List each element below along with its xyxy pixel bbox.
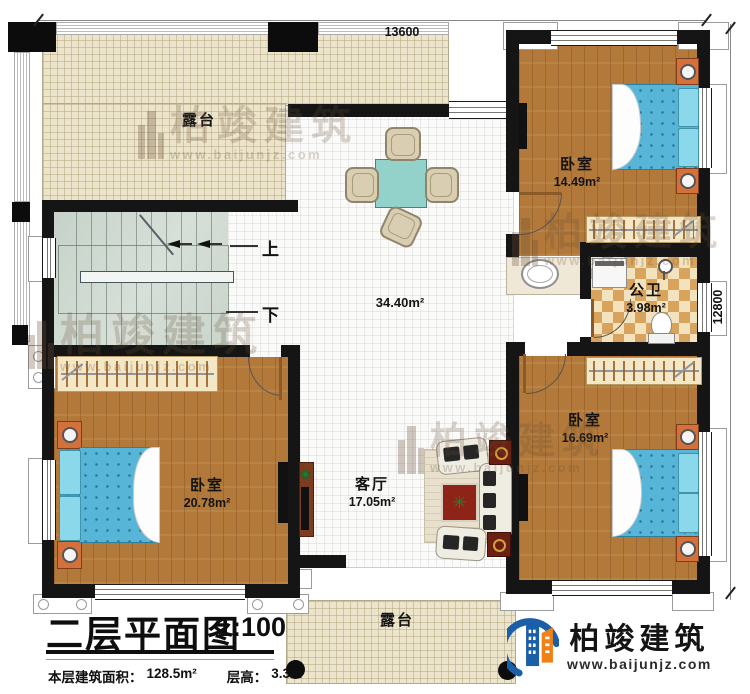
bathroom-label: 公卫 3.98m² [606, 282, 686, 316]
floor-area-value: 128.5m² [147, 666, 197, 686]
wardrobe [586, 357, 702, 385]
column [8, 22, 56, 52]
tv [519, 103, 527, 149]
arrow-tail [210, 243, 222, 245]
nightstand [676, 168, 699, 194]
window [42, 460, 56, 540]
title-underline-thin [46, 659, 274, 660]
living-room-label: 客厅 17.05m² [322, 476, 422, 510]
window-sill [672, 592, 714, 611]
wall [42, 212, 54, 238]
bedroom-bottom-left-label: 卧室 20.78m² [157, 477, 257, 511]
terrace-bottom-label: 露台 [357, 612, 437, 631]
bedroom-top-right-label: 卧室 14.49m² [527, 156, 627, 190]
door-leaf [519, 192, 561, 195]
window [449, 101, 506, 119]
tv [278, 462, 288, 523]
wall [293, 555, 346, 568]
floor-height-value: 3.3m [271, 666, 302, 686]
door-leaf [591, 299, 594, 337]
terrace-railing-left [14, 52, 30, 202]
pillow [678, 453, 699, 493]
stair-direction-arrow [197, 240, 210, 248]
wall [672, 580, 710, 594]
company-website: www.baijunjz.com [567, 656, 712, 672]
company-logo: 柏竣建筑 www.baijunjz.com [507, 610, 727, 684]
stairs-down-label: 下 [262, 301, 279, 326]
floor-plan-canvas: 上 下 ✳ [0, 0, 750, 694]
dimension-line-right [730, 24, 731, 600]
stair-handrail [80, 271, 234, 283]
pillow [678, 88, 699, 127]
column [268, 22, 318, 52]
company-name: 柏竣建筑 [569, 623, 709, 656]
pier [12, 202, 30, 222]
pillow [59, 450, 81, 495]
nightstand [57, 421, 82, 449]
title-info-line: 本层建筑面积： 128.5m² 层高： 3.3m [48, 666, 302, 686]
drawing-scale: 1:100 [217, 612, 286, 643]
stair-direction-arrow [167, 240, 180, 248]
dining-chair [385, 127, 421, 161]
nightstand [57, 541, 82, 569]
wall [506, 36, 519, 192]
sink [521, 259, 559, 289]
toilet-tank [648, 333, 675, 344]
dining-chair [425, 167, 459, 203]
armchair [435, 525, 487, 561]
wall [245, 584, 300, 598]
side-table [489, 440, 512, 465]
porch-strip [296, 567, 514, 602]
window [552, 580, 672, 596]
side-table [487, 532, 511, 557]
floor-area-label: 本层建筑面积： [48, 666, 143, 686]
sofa [479, 463, 512, 539]
nightstand [676, 58, 699, 85]
window [551, 30, 677, 46]
window [42, 238, 56, 278]
pillow [678, 493, 699, 533]
wall [580, 242, 710, 257]
dimension-height: 12800 [711, 277, 725, 337]
wall [506, 580, 552, 594]
dining-chair [345, 167, 379, 203]
window [95, 584, 245, 600]
window [697, 283, 712, 332]
dimension-line-top [38, 20, 706, 21]
window [697, 432, 712, 556]
nightstand [676, 424, 699, 450]
tv [519, 474, 528, 521]
wall [42, 278, 54, 460]
dining-table [375, 159, 427, 208]
wall [42, 540, 54, 598]
floor-height-label: 层高： [227, 666, 268, 686]
shower-hose [663, 271, 665, 280]
up-leader-line [230, 245, 258, 247]
plant [301, 470, 310, 479]
bedroom-right-label: 卧室 16.69m² [535, 412, 635, 446]
terrace-top-label: 露台 [159, 112, 239, 131]
plant-icon: ✳ [452, 493, 466, 513]
nightstand [676, 536, 699, 562]
wall [42, 200, 298, 212]
company-logo-icon [507, 610, 559, 684]
pillow [59, 496, 81, 541]
window-sill [500, 592, 554, 611]
dimension-width: 13600 [372, 25, 432, 39]
hall-area-label: 34.40m² [360, 295, 440, 311]
title-underline [46, 650, 274, 654]
door-leaf [523, 354, 526, 393]
arrow-tail [180, 243, 192, 245]
window [697, 88, 712, 168]
tv [301, 487, 309, 530]
wall [580, 257, 591, 299]
pillow [678, 128, 699, 167]
terrace-railing-top [56, 22, 270, 35]
terrace-top-upper [42, 32, 449, 106]
down-leader-line [226, 311, 258, 313]
wall [288, 104, 449, 117]
stairs-up-label: 上 [262, 235, 279, 260]
door-leaf [279, 357, 282, 400]
coffee-table: ✳ [441, 483, 478, 522]
wardrobe [57, 356, 218, 392]
shower-head [658, 259, 673, 274]
pier [12, 325, 28, 345]
wall [506, 234, 519, 257]
wardrobe [586, 216, 701, 243]
wall [567, 342, 710, 356]
